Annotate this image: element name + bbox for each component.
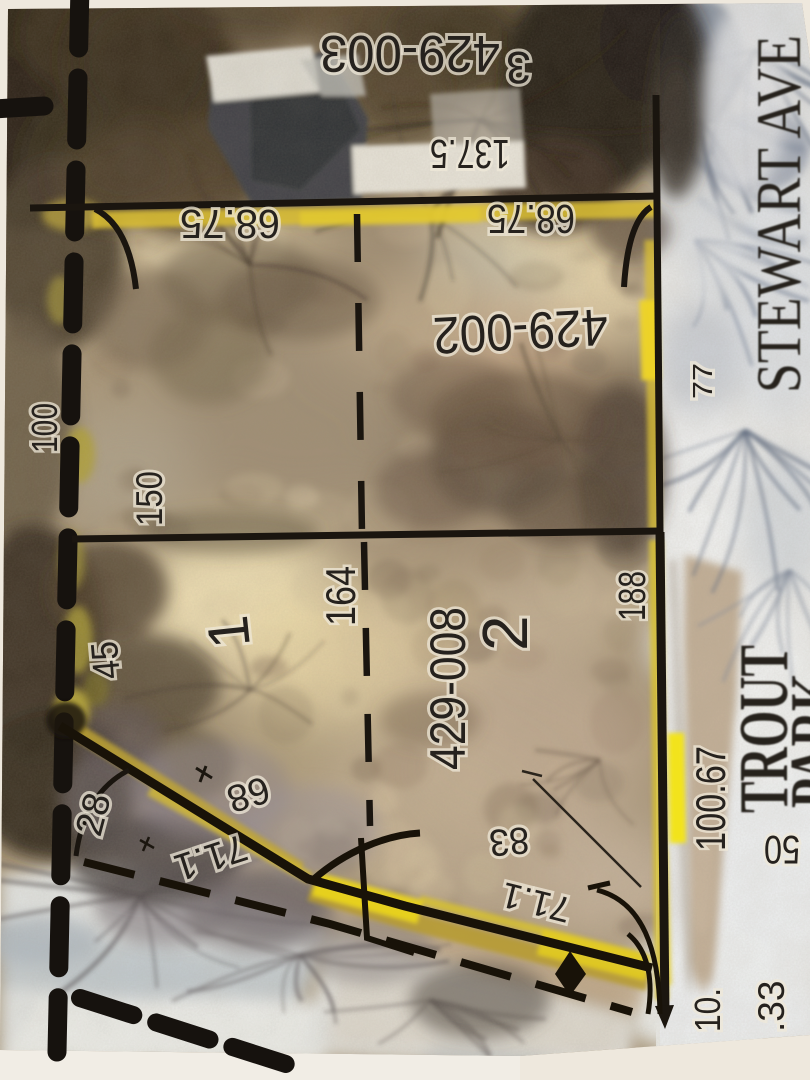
svg-text:429-002: 429-002 <box>432 297 610 364</box>
svg-text:83: 83 <box>487 818 531 863</box>
svg-text:3: 3 <box>506 42 531 93</box>
svg-text:77: 77 <box>687 363 718 399</box>
svg-text:137.5: 137.5 <box>430 131 510 177</box>
svg-text:50: 50 <box>764 827 800 871</box>
svg-text:150: 150 <box>129 471 170 526</box>
svg-text:429-003: 429-003 <box>320 24 500 82</box>
svg-text:164: 164 <box>317 566 364 626</box>
svg-text:1: 1 <box>195 613 263 652</box>
svg-text:2: 2 <box>469 615 541 651</box>
svg-text:PARK: PARK <box>777 673 810 808</box>
svg-text:100: 100 <box>24 403 65 453</box>
svg-text:.33: .33 <box>751 981 792 1032</box>
svg-text:68.75: 68.75 <box>180 201 280 247</box>
svg-text:45: 45 <box>84 639 129 681</box>
svg-text:STEWART AVE: STEWART AVE <box>743 35 810 393</box>
svg-text:68.75: 68.75 <box>487 196 575 242</box>
svg-text:10.: 10. <box>687 988 728 1032</box>
svg-text:429-008: 429-008 <box>420 607 476 770</box>
svg-text:188: 188 <box>612 571 654 621</box>
